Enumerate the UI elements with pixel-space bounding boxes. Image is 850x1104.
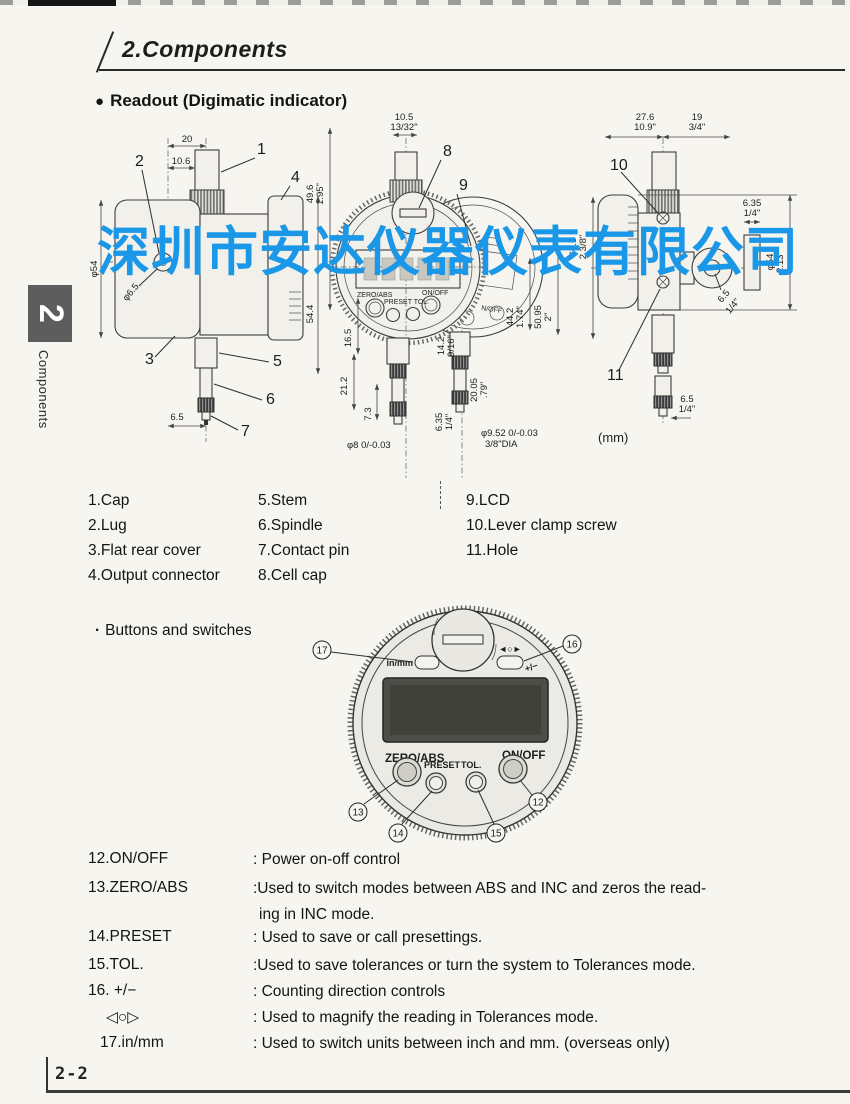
dim-1-4-bot: 1/4" [679, 404, 696, 415]
dimension-drawing: 20 10.6 φ54 54.4 6.5 φ6.5 1 2 3 4 5 6 7 [85, 112, 845, 478]
control-desc-cont: ing in INC mode. [259, 906, 374, 924]
cap-shape-front [395, 152, 417, 182]
callout-12: 12 [532, 798, 544, 809]
contact-pin-tip [204, 420, 208, 425]
control-term: 16. +/− [88, 982, 136, 1000]
dim-1-74: 1.74" [515, 306, 526, 328]
dim-phi8: φ8 0/-0.03 [347, 440, 391, 451]
readout-heading-label: Readout (Digimatic indicator) [110, 91, 347, 110]
callout-1: 1 [257, 141, 266, 158]
front-view-drawing: N/OFF ZERO/ABS ON/OFF PRESET TOL. [305, 112, 593, 478]
control-desc: :Used to switch modes between ABS and IN… [253, 880, 706, 898]
part-item: 1.Cap [88, 492, 129, 510]
control-term: 17.in/mm [100, 1034, 164, 1052]
dim-16-5: 16.5 [343, 329, 354, 348]
callout-5: 5 [273, 353, 282, 370]
page-number: 2-2 [55, 1064, 89, 1084]
readout-heading: ●Readout (Digimatic indicator) [95, 91, 347, 111]
dim-9-16: 9/16" [446, 335, 457, 357]
dim-7-3: 7.3 [363, 407, 374, 420]
part-item: 3.Flat rear cover [88, 542, 201, 560]
callout-9: 9 [459, 177, 468, 194]
company-watermark: 深圳市安达仪器仪表有限公司 [97, 210, 799, 286]
callout-4: 4 [291, 169, 300, 186]
spindle-shape [200, 368, 212, 398]
callout-8: 8 [443, 143, 452, 160]
bullet-dot-icon: · [95, 622, 100, 639]
direction-arrows-label: ◄○► [498, 644, 521, 654]
part-item: 11.Hole [466, 542, 518, 560]
part-item: 8.Cell cap [258, 567, 327, 585]
callout-13: 13 [352, 808, 364, 819]
control-desc: : Counting direction controls [253, 983, 445, 1001]
control-term: 12.ON/OFF [88, 850, 168, 868]
dim-54-4: 54.4 [305, 305, 316, 324]
cell-cap-slot [443, 635, 483, 644]
page-title: 2.Components [122, 36, 288, 63]
dim-13-32: 13/32" [390, 122, 417, 133]
front-zeroabs-label: ZERO/ABS [357, 292, 393, 299]
control-term: 15.TOL. [88, 956, 144, 974]
dim-10-6: 10.6 [172, 156, 191, 167]
dim-20: 20 [182, 134, 193, 145]
front-onoff-label: ON/OFF [422, 290, 448, 297]
part-item: 4.Output connector [88, 567, 220, 585]
callout-15: 15 [490, 829, 502, 840]
chapter-label: Components [36, 350, 51, 429]
manual-page: 2.Components ●Readout (Digimatic indicat… [0, 0, 850, 1104]
chapter-tab: 2 [28, 285, 72, 342]
control-desc: : Power on-off control [253, 851, 400, 869]
in-mm-switch[interactable] [415, 656, 439, 669]
dim-79: .79" [479, 382, 490, 399]
dim-2in: 2" [543, 313, 554, 322]
dim-10-9: 10.9" [634, 122, 656, 133]
callout-3: 3 [145, 351, 154, 368]
dim-6-5: 6.5 [170, 412, 183, 423]
buttons-heading: ·Buttons and switches [95, 622, 252, 640]
callout-11: 11 [607, 367, 624, 384]
bullet-icon: ● [95, 93, 104, 110]
control-desc: :Used to save tolerances or turn the sys… [253, 957, 696, 975]
callout-2: 2 [135, 153, 144, 170]
dim-21-2: 21.2 [339, 377, 350, 396]
footer-rule-horizontal [46, 1090, 850, 1093]
buttons-heading-label: Buttons and switches [105, 622, 251, 639]
dim-phi9-52: φ9.52 0/-0.03 [481, 428, 538, 439]
footer-rule-vertical [46, 1057, 48, 1092]
lcd-screen-inner [390, 685, 541, 735]
part-item: 2.Lug [88, 517, 127, 535]
face-diagram: in/mm ◄○► +/− ZERO/ABS ON/OFF PRESET TOL… [310, 600, 590, 850]
callout-10: 10 [610, 157, 628, 174]
control-desc: : Used to save or call presettings. [253, 929, 482, 947]
callout-14: 14 [392, 829, 404, 840]
dim-1-95: 1.95" [315, 183, 326, 205]
control-term: 13.ZERO/ABS [88, 879, 188, 897]
units-note: (mm) [598, 430, 628, 445]
callout-17: 17 [316, 646, 328, 657]
side-view-drawing: 20 10.6 φ54 54.4 6.5 φ6.5 1 2 3 4 5 6 7 [89, 134, 318, 442]
header-rule [99, 69, 845, 71]
callout-6: 6 [266, 391, 275, 408]
scan-edge-artifact [0, 0, 850, 5]
preset-label: PRESET [424, 760, 461, 770]
plus-minus-switch[interactable] [497, 656, 523, 669]
tol-label: TOL. [461, 760, 481, 770]
control-term: 14.PRESET [88, 928, 172, 946]
part-item: 7.Contact pin [258, 542, 349, 560]
dim-3-4: 3/4" [689, 122, 706, 133]
callout-16: 16 [566, 640, 578, 651]
control-desc: : Used to magnify the reading in Toleran… [253, 1009, 598, 1027]
dim-3-8dia: 3/8"DIA [485, 439, 518, 450]
header-slash-mark [96, 31, 114, 73]
chapter-number: 2 [30, 304, 69, 323]
part-item: 6.Spindle [258, 517, 323, 535]
scan-edge-black-mark [28, 0, 116, 6]
control-desc: : Used to switch units between inch and … [253, 1035, 670, 1053]
part-item: 9.LCD [466, 492, 510, 510]
stem-shape [195, 338, 217, 368]
part-item: 5.Stem [258, 492, 307, 510]
part-item: 10.Lever clamp screw [466, 517, 617, 535]
control-term: ◁○▷ [106, 1008, 139, 1027]
callout-7: 7 [241, 423, 250, 440]
centerline-continuation [440, 481, 441, 509]
dim-1-4: 1/4" [444, 414, 455, 431]
cap-shape [195, 150, 219, 190]
